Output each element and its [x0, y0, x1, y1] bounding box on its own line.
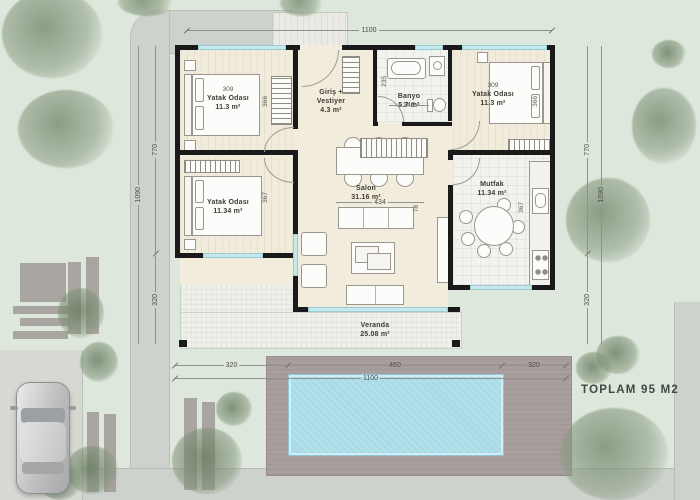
- wall: [448, 185, 453, 290]
- room-label-veranda: Veranda 25.08 m²: [340, 321, 410, 339]
- room-name: Yatak Odası: [190, 198, 266, 207]
- dim-living-depth: 78: [414, 205, 421, 212]
- car: [16, 382, 70, 494]
- room-label-bedroom-left: Yatak Odası 11.34 m²: [190, 198, 266, 216]
- dim-bottom-total: 1100: [175, 374, 566, 383]
- window: [470, 285, 532, 290]
- kitchen-chair: [459, 210, 473, 224]
- room-area: 11.34 m²: [190, 207, 266, 216]
- tree: [18, 90, 114, 168]
- wall: [373, 122, 378, 126]
- veranda-terrace: [180, 312, 462, 349]
- car-mirror: [68, 406, 76, 410]
- dim-bedroom1-width: 309: [190, 87, 266, 94]
- room-area: 11.3 m²: [190, 103, 266, 112]
- tree: [560, 408, 668, 500]
- wall: [448, 150, 555, 155]
- dim-left-total: 1090: [134, 46, 143, 344]
- total-area-label: TOPLAM 95 M2: [558, 384, 700, 396]
- dim-left-lower: 320: [151, 256, 160, 344]
- dim-right-total: 1090: [597, 46, 606, 344]
- room-name: Veranda: [340, 321, 410, 330]
- bush: [216, 392, 252, 426]
- wall: [293, 45, 298, 129]
- dim-bedroom1-height: 366: [263, 96, 270, 107]
- room-name: Yatak Odası: [190, 94, 266, 103]
- wall: [373, 45, 377, 126]
- room-area: 25.08 m²: [340, 330, 410, 339]
- bush: [80, 342, 118, 382]
- car-roof: [20, 422, 66, 462]
- road-right: [674, 302, 700, 500]
- dim-top-total: 1100: [186, 26, 552, 35]
- tree: [566, 178, 650, 262]
- room-label-entry: Giriş + Vestiyer 4.3 m²: [306, 88, 356, 115]
- wardrobe: [184, 160, 240, 173]
- room-name: Salon: [336, 184, 396, 193]
- wall: [448, 45, 452, 121]
- room-name: Mutfak: [462, 180, 522, 189]
- wall: [402, 122, 452, 126]
- window: [462, 45, 547, 50]
- kitchen-chair: [461, 232, 475, 246]
- hall-closet: [360, 138, 428, 158]
- bush: [652, 40, 686, 68]
- room-area: 4.3 m²: [306, 106, 356, 115]
- window: [198, 45, 286, 50]
- dim-bedroom3-height: 367: [263, 192, 270, 203]
- dim-left-upper: 770: [151, 46, 160, 254]
- site-plan: Yatak Odası 11.3 m² Giriş + Vestiyer 4.3…: [0, 0, 700, 500]
- bush: [58, 288, 104, 338]
- kitchen-table: [474, 206, 514, 246]
- dim-bedroom2-width: 309: [455, 83, 531, 90]
- nightstand: [184, 239, 196, 250]
- nightstand: [184, 60, 196, 71]
- armchair: [301, 264, 327, 288]
- nightstand: [477, 52, 488, 63]
- dim-living-width: 434: [336, 198, 424, 207]
- room-name: Giriş + Vestiyer: [306, 88, 356, 106]
- tree: [632, 88, 696, 164]
- kitchen-chair: [477, 244, 491, 258]
- bush: [172, 428, 242, 494]
- dim-bathroom-height: 235: [382, 76, 389, 87]
- dim-bottom-left: 320: [175, 361, 288, 370]
- kitchen-sink-basin: [535, 193, 546, 208]
- window: [203, 253, 263, 258]
- armchair: [301, 232, 327, 256]
- wall: [550, 45, 555, 290]
- dim-bedroom2-height: 366: [533, 96, 540, 107]
- wardrobe: [271, 76, 292, 125]
- coffee-table-tray: [367, 253, 391, 270]
- veranda-post: [179, 340, 187, 347]
- room-area: 11.34 m²: [462, 189, 522, 198]
- car-windshield: [21, 408, 65, 423]
- planter: [13, 331, 68, 339]
- dim-bathroom-width: 243: [389, 101, 429, 110]
- window: [415, 45, 443, 50]
- room-label-bedroom-top-right: Yatak Odası 11.3 m²: [455, 90, 531, 108]
- dim-right-lower: 320: [583, 256, 592, 344]
- room-area: 11.3 m²: [455, 99, 531, 108]
- room-name: Yatak Odası: [455, 90, 531, 99]
- bush: [576, 352, 612, 384]
- tree: [2, 0, 102, 78]
- room-name: Banyo: [386, 92, 432, 101]
- window: [293, 234, 298, 276]
- dim-right-upper: 770: [583, 46, 592, 254]
- room-label-bedroom-top-left: Yatak Odası 11.3 m²: [190, 94, 266, 112]
- pool: [288, 374, 504, 456]
- dim-bottom-center: 460: [288, 361, 502, 370]
- car-mirror: [10, 406, 18, 410]
- stove: [532, 250, 549, 280]
- room-label-kitchen: Mutfak 11.34 m²: [462, 180, 522, 198]
- bathtub-basin: [391, 61, 421, 75]
- window-slider: [308, 307, 448, 312]
- planter: [20, 263, 66, 302]
- sofa: [338, 207, 414, 229]
- toilet-bowl: [433, 98, 446, 112]
- dim-bottom-right: 320: [502, 361, 566, 370]
- dim-kitchen-height: 367: [519, 202, 526, 213]
- car-rear-window: [22, 462, 64, 474]
- tv-console: [346, 285, 404, 305]
- pillow: [531, 66, 540, 90]
- washer-drum: [433, 61, 442, 70]
- veranda-post: [452, 340, 460, 347]
